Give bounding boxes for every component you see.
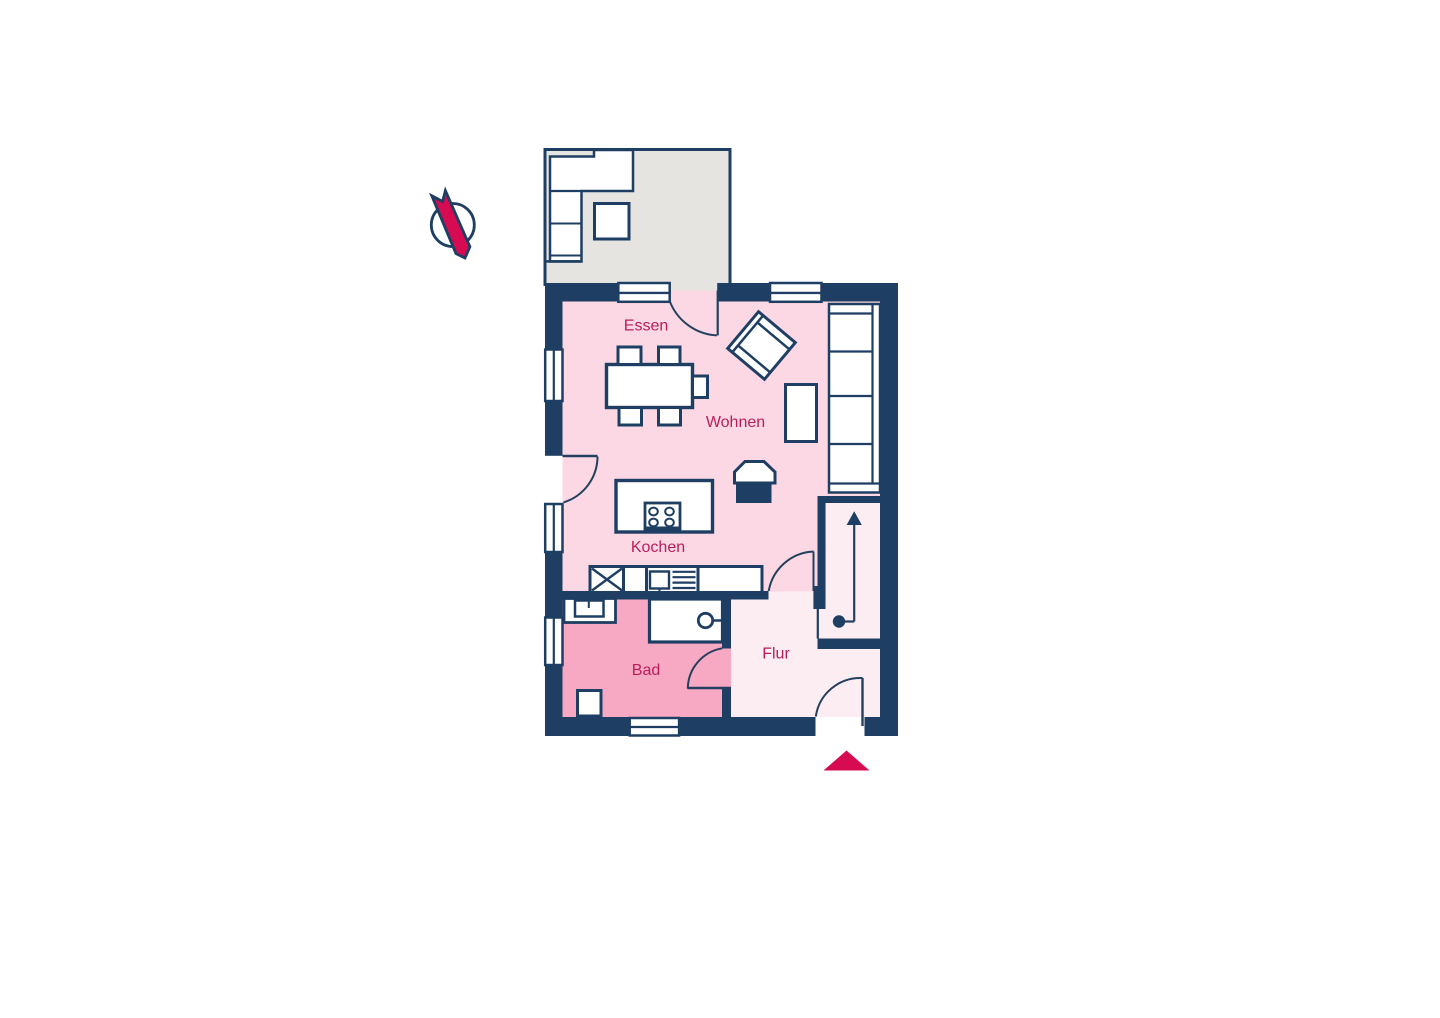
svg-text:Essen: Essen xyxy=(624,318,668,335)
svg-text:Flur: Flur xyxy=(762,645,790,662)
svg-text:Wohnen: Wohnen xyxy=(706,414,765,431)
svg-text:Kochen: Kochen xyxy=(631,539,685,556)
svg-text:Bad: Bad xyxy=(632,662,660,679)
